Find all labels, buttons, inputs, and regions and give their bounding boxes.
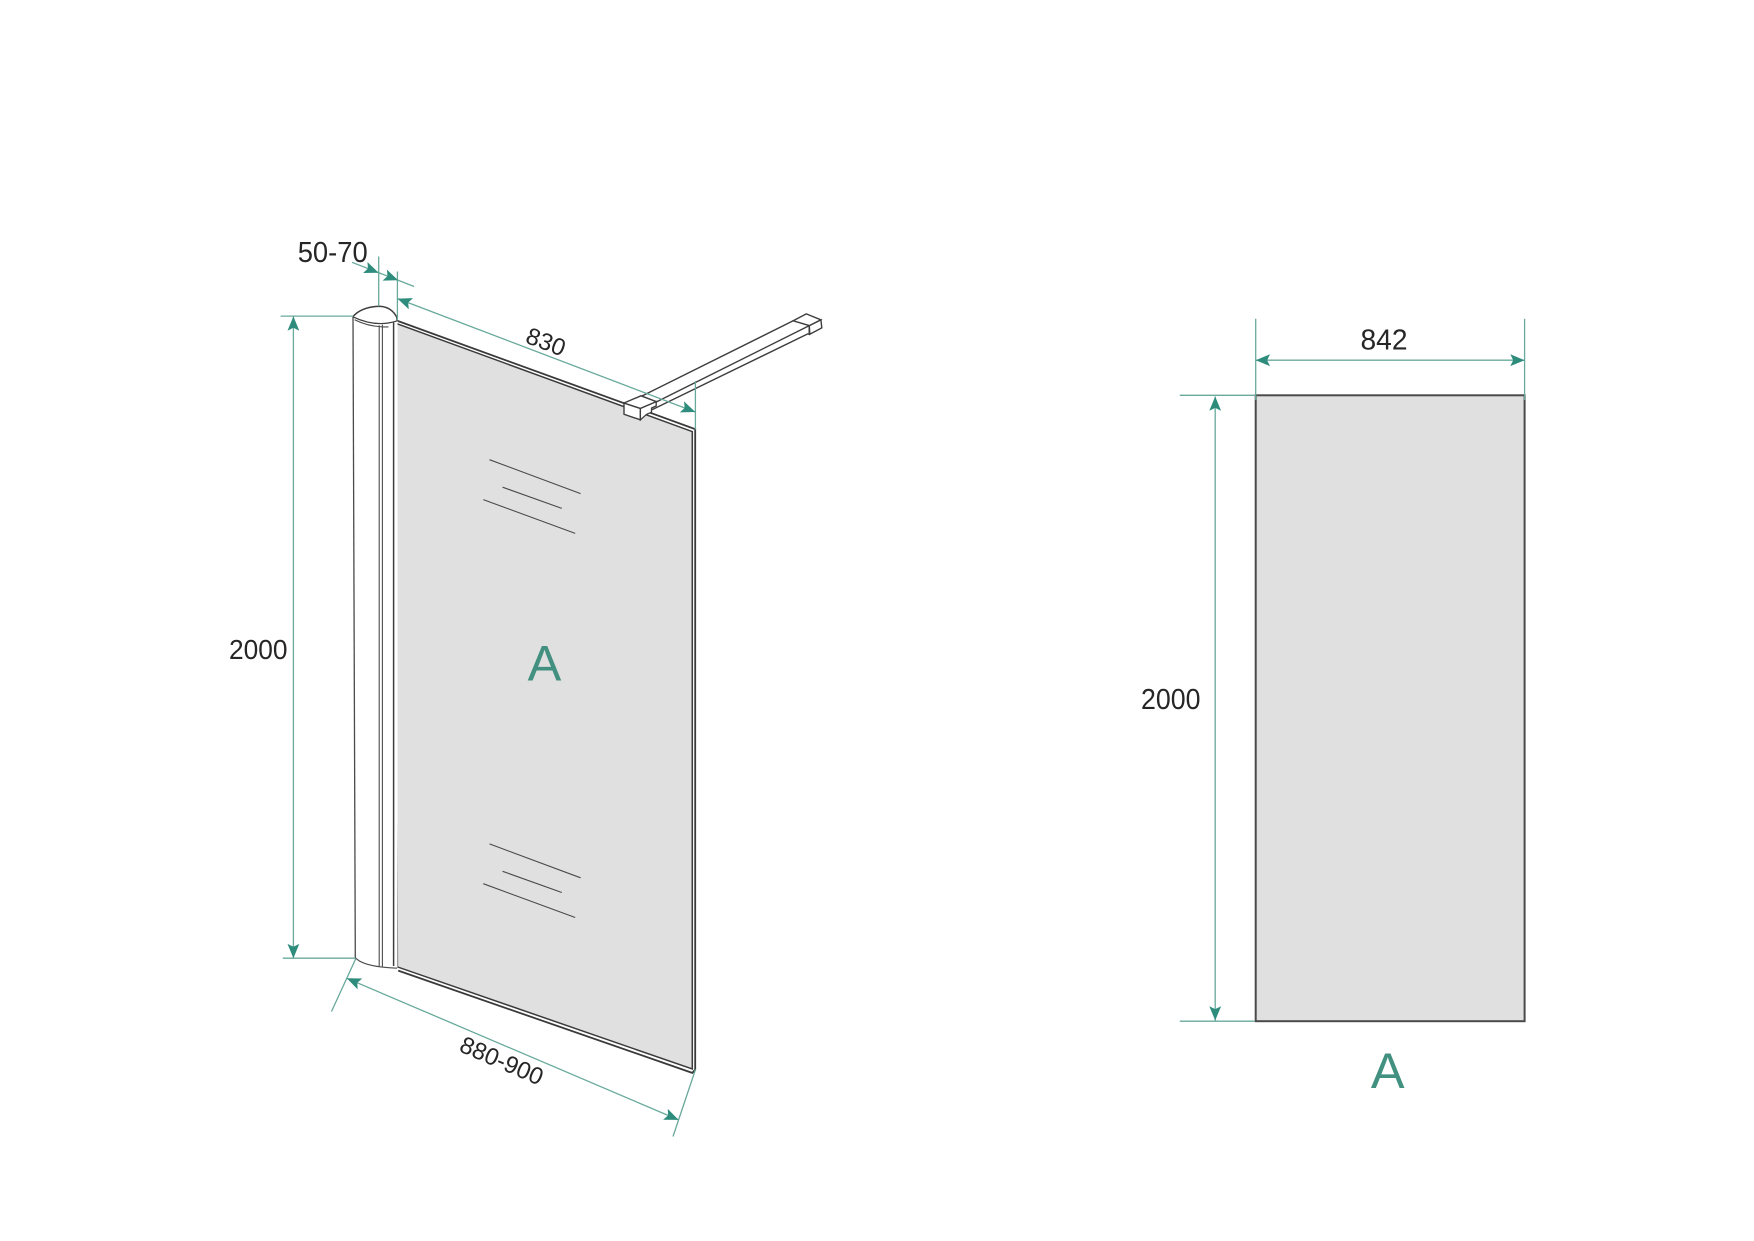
svg-text:A: A [528, 635, 562, 692]
svg-text:2000: 2000 [229, 634, 288, 665]
svg-text:880-900: 880-900 [456, 1031, 548, 1091]
svg-text:50-70: 50-70 [298, 237, 368, 269]
svg-text:842: 842 [1361, 325, 1408, 357]
svg-text:2000: 2000 [1141, 684, 1201, 716]
svg-text:A: A [1371, 1042, 1405, 1099]
svg-text:830: 830 [522, 323, 569, 363]
